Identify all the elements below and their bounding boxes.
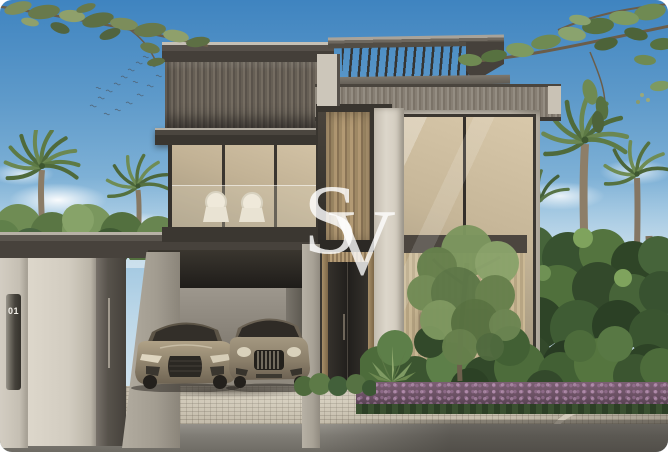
leaf-cluster (3, 0, 210, 68)
door-handle (343, 314, 345, 340)
unit-number: 01 (6, 306, 21, 316)
villa-exterior-photo: 01 (0, 0, 668, 452)
courtyard-tree (405, 215, 535, 383)
overhanging-branch-left (0, 0, 210, 84)
patio-chairs (196, 189, 276, 227)
sports-car (131, 322, 239, 392)
overhanging-branch-right (440, 0, 668, 158)
side-door-handle (108, 298, 110, 368)
balcony-canopy (155, 128, 335, 145)
watermark-letter-v: V (328, 196, 396, 290)
entry-planting (292, 372, 376, 396)
unit-number-plaque: 01 (6, 294, 21, 390)
entrance-tower-top (317, 54, 340, 106)
side-door-recess (96, 258, 126, 446)
parked-cars (126, 300, 314, 392)
leaf-cluster (458, 1, 668, 133)
house-wall-block (28, 258, 96, 446)
hedge-green-base (356, 404, 668, 414)
